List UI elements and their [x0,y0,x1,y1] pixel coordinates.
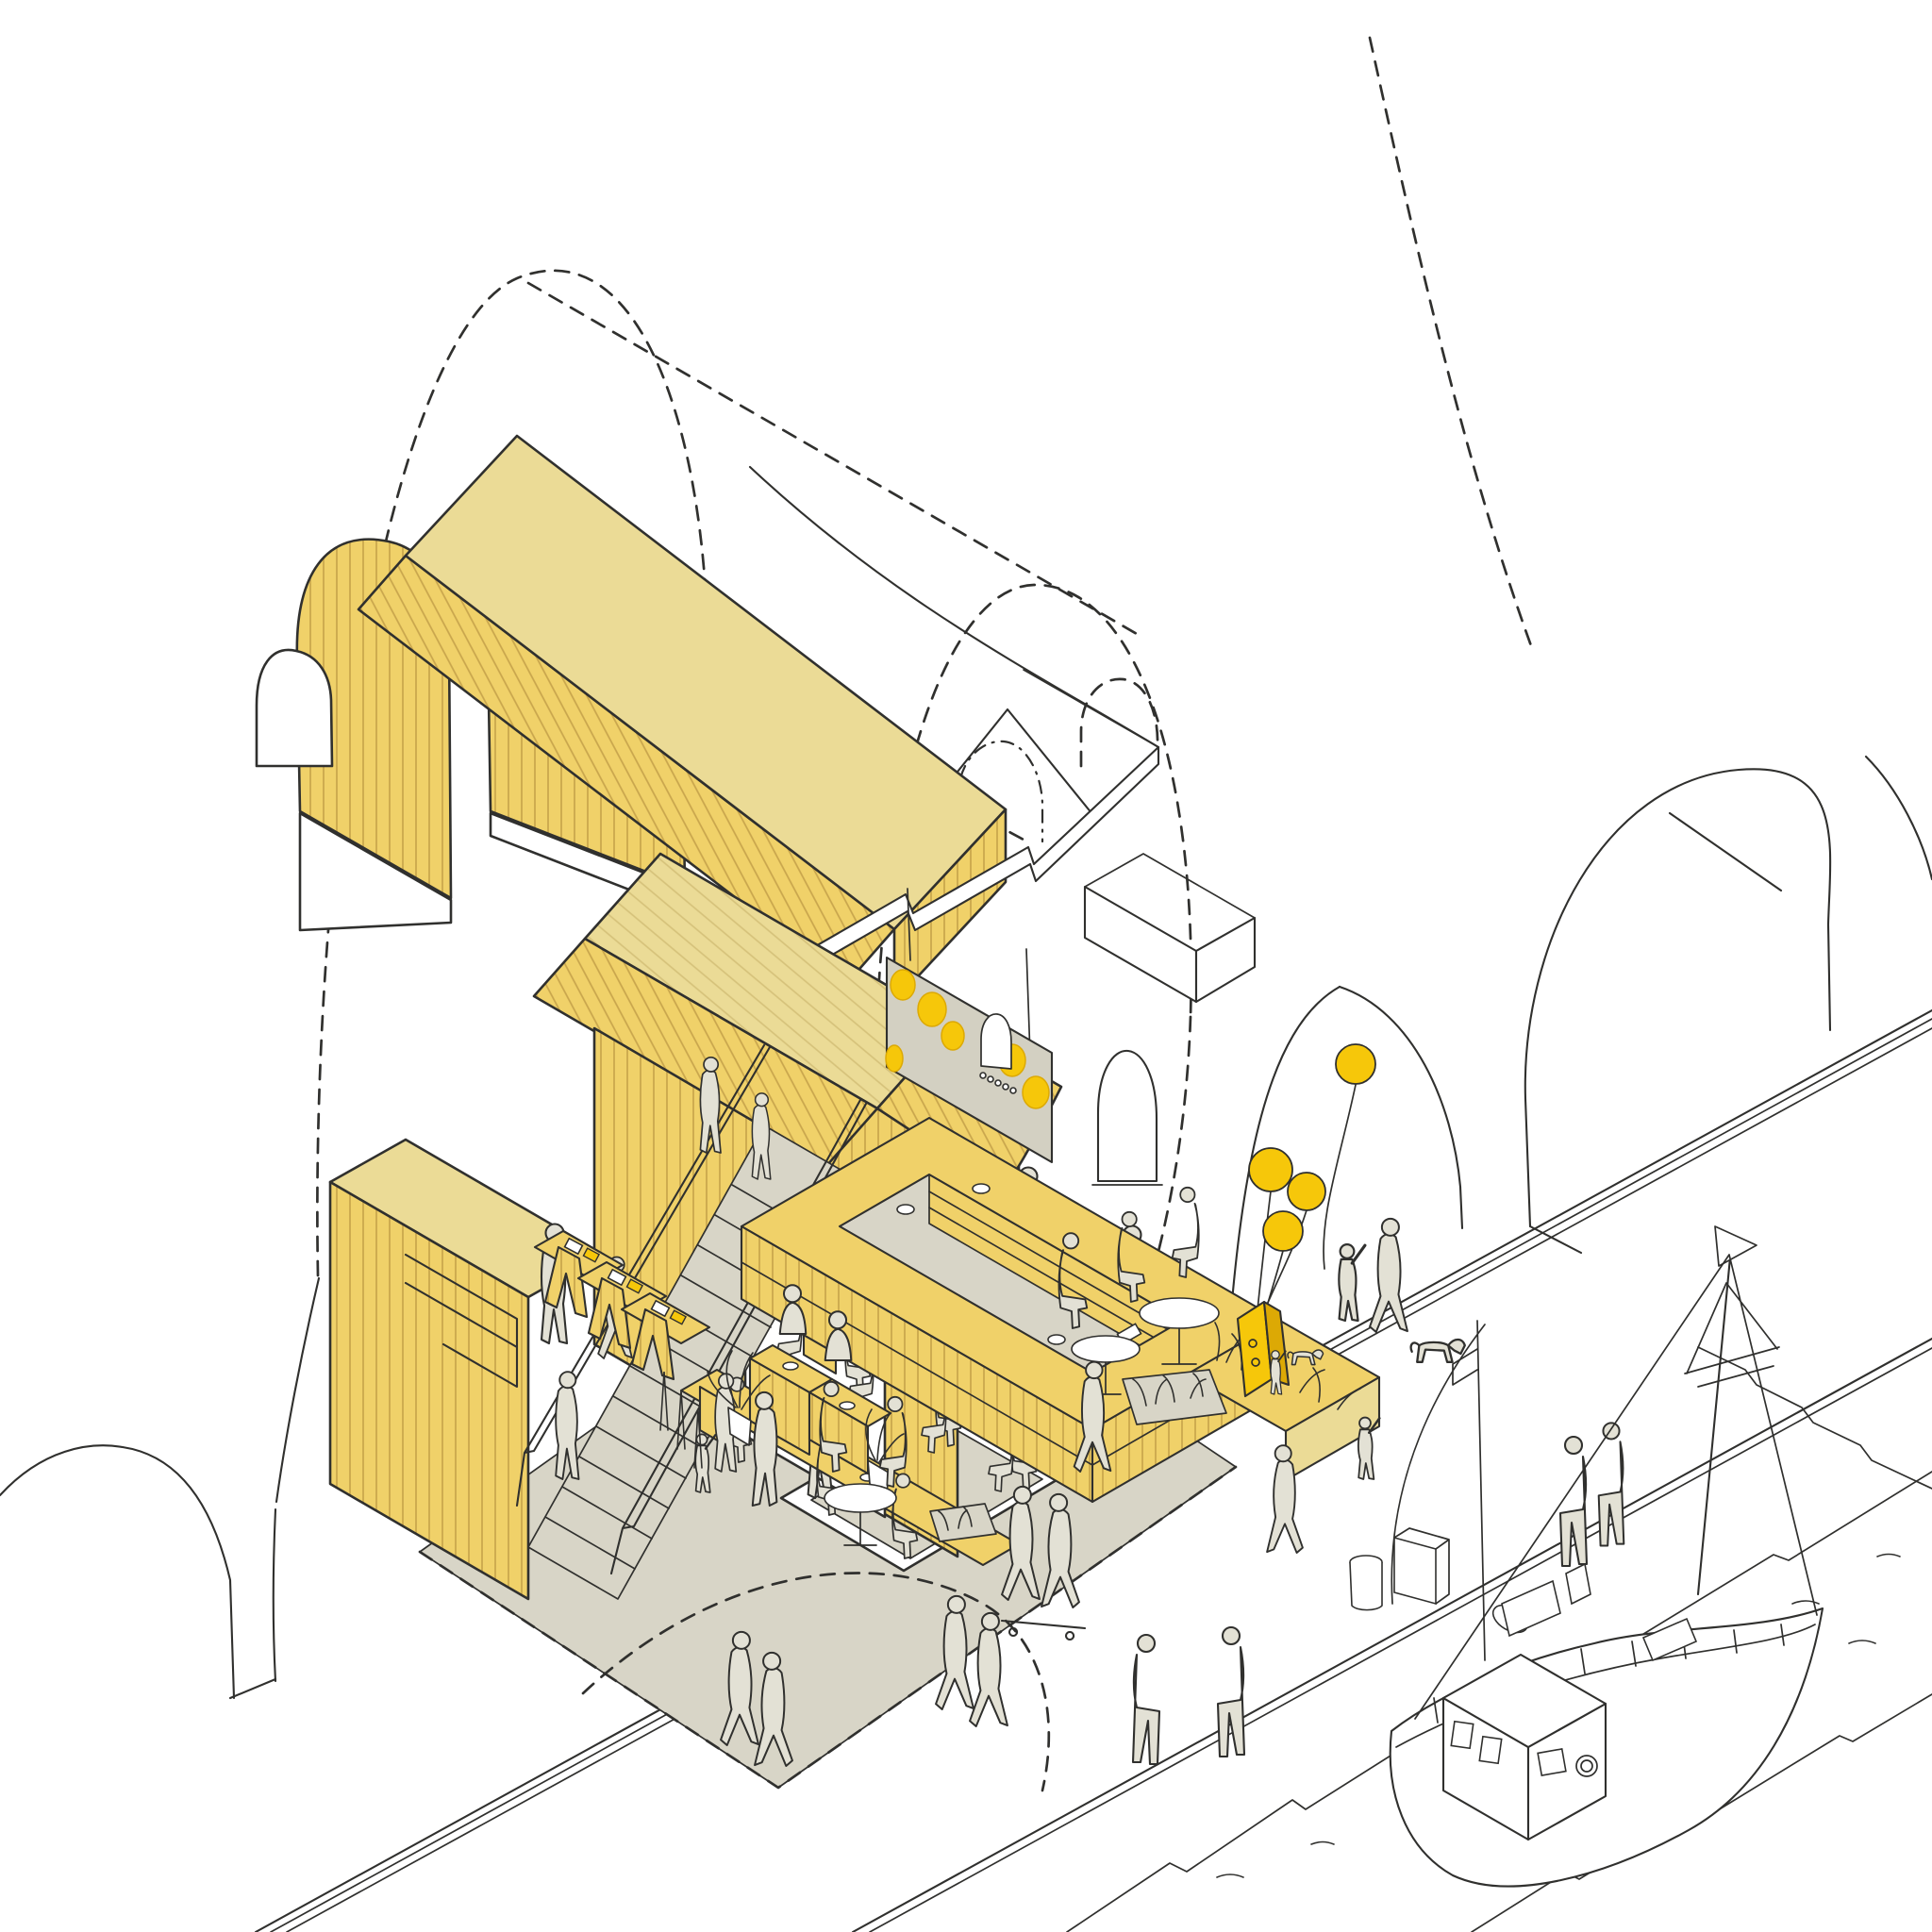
floating-balloon [1336,1044,1375,1084]
arch-far-partial [1866,757,1932,879]
fishing-boat [1391,1226,1823,1886]
quay-sitter [1218,1627,1244,1757]
screen-hole [941,1022,964,1050]
dog-walker [1370,1219,1407,1332]
arch-main-chord [1670,813,1781,891]
main-mast [1698,1238,1732,1594]
arch-main-foot [1530,1226,1581,1253]
wheelhouse-window [1479,1737,1501,1764]
envelope-tail-top-right [1370,38,1533,651]
screen-hole [1023,1076,1049,1108]
balloon [1288,1173,1325,1210]
ground-floor-hall [330,854,1379,1790]
slab-back-edge [1024,670,1158,747]
bar-items [973,1184,990,1193]
screen-hole [918,992,946,1026]
dog [1411,1340,1465,1362]
vault-arch-opening [257,650,332,766]
screen-arch-niche [981,1014,1011,1069]
arched-window [1092,1051,1162,1185]
kiosk-items [840,1402,855,1409]
arch-pier-edge [274,1509,275,1681]
round-table [1140,1298,1219,1328]
arch-curve [0,1445,234,1698]
context-arch-left [0,1278,319,1698]
bar-items [1048,1335,1065,1344]
floating-balloon-string [1324,1085,1356,1269]
mast-crossbar [1685,1347,1779,1387]
planting-bed [930,1504,996,1541]
slab-bulkhead-front [1085,887,1196,1002]
round-table [824,1484,896,1512]
arch-pier-foot [230,1679,275,1698]
a-board-sign [1238,1302,1289,1396]
wheelhouse-window [1538,1749,1566,1775]
screen-hole [891,970,915,1000]
architectural-sketch-canvas [0,0,1932,1932]
round-table [1072,1336,1140,1362]
quay-sitter [1560,1437,1587,1566]
balloon [1249,1148,1292,1191]
wheelhouse-window [1451,1722,1473,1749]
arched-window-frame [1098,1051,1157,1181]
bar-items [897,1205,914,1214]
context-arches-right [1228,757,1932,1347]
waving-child [1339,1244,1365,1321]
arch-rise-next [276,1278,319,1502]
kiosk-items [783,1362,798,1370]
screen-hole [886,1045,903,1072]
balloon [1263,1211,1303,1251]
quay-sitter [1133,1635,1159,1764]
exploded-axonometric-drawing [0,0,1932,1932]
slab-bulkhead-side [1196,918,1255,1002]
far-shore-wavy [1698,1347,1932,1489]
arch-near-right-curve [1340,987,1462,1228]
litter-bins [1350,1528,1449,1610]
mast-vane [1715,1226,1757,1266]
